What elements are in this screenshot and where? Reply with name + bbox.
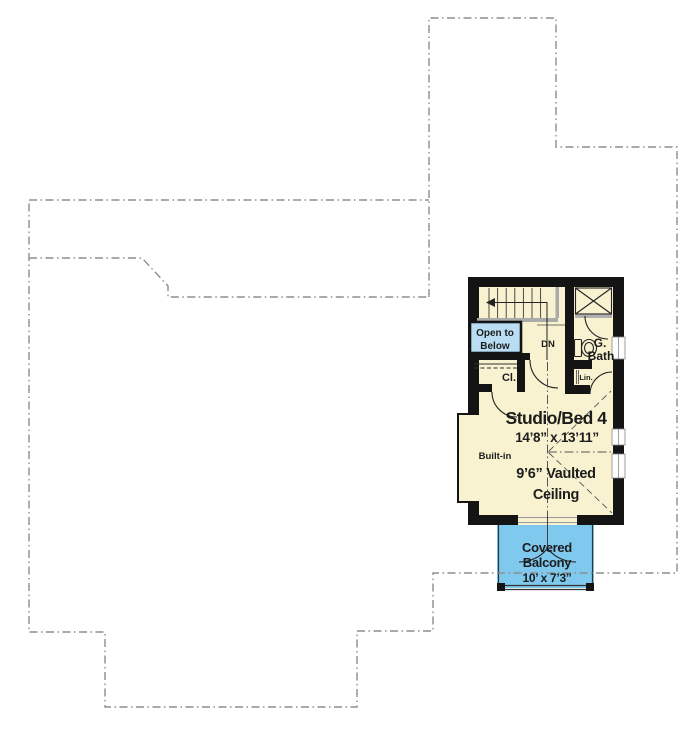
- wall-stair-bath-divider: [565, 287, 574, 385]
- floor-plan-canvas: Open to Below DN Cl. G. Bath Lin. Studio…: [0, 0, 700, 739]
- balcony-post-left: [497, 583, 505, 591]
- wall-top: [468, 277, 624, 287]
- linen-label: Lin.: [579, 373, 592, 382]
- ceiling-label-1: 9’6” Vaulted: [516, 466, 595, 482]
- wall-right: [613, 277, 624, 525]
- wall-closet-stub: [517, 360, 525, 392]
- balcony-label-1: Covered: [522, 540, 572, 555]
- open-to-below-label-2: Below: [480, 341, 510, 352]
- stair-landing-edge: [556, 287, 560, 318]
- ceiling-label-2: Ceiling: [533, 487, 579, 503]
- closet-label: Cl.: [502, 372, 516, 384]
- built-in-niche: [458, 414, 479, 502]
- wall-bath-bottom: [565, 385, 590, 394]
- stairs-down-label: DN: [541, 339, 555, 350]
- bath-label-1: G.: [594, 336, 607, 350]
- balcony-label-2: Balcony: [523, 555, 573, 570]
- room-dimensions: 14’8” x 13’11”: [515, 430, 599, 445]
- built-in-label: Built-in: [479, 451, 512, 462]
- balcony-dimensions: 10’ x 7’3”: [522, 571, 571, 585]
- open-to-below-label-1: Open to: [476, 328, 514, 339]
- outline-inner-step: [29, 258, 429, 297]
- wall-closet-bottom: [468, 384, 492, 392]
- bath-label-2: Bath: [588, 349, 615, 363]
- room-title: Studio/Bed 4: [506, 408, 608, 428]
- shower-curb: [575, 315, 612, 319]
- balcony-post-right: [586, 583, 594, 591]
- floor-plan-svg: Open to Below DN Cl. G. Bath Lin. Studio…: [0, 0, 700, 739]
